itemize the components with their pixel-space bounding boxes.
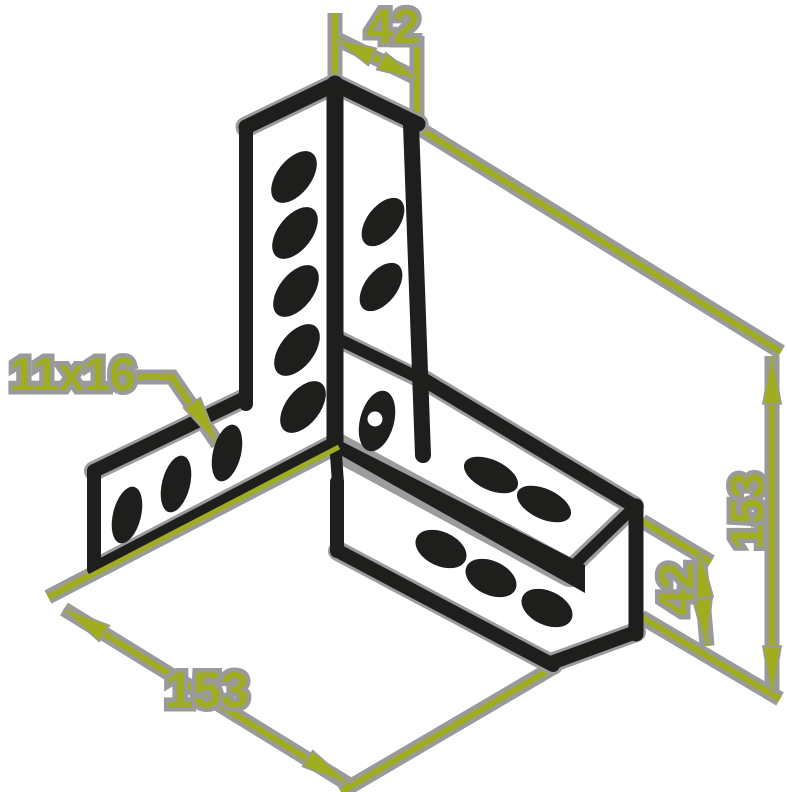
svg-text:153: 153 (721, 473, 773, 550)
svg-text:11x16: 11x16 (10, 348, 135, 400)
svg-text:42: 42 (651, 562, 704, 615)
svg-text:42: 42 (366, 1, 419, 54)
svg-text:153: 153 (165, 662, 248, 718)
